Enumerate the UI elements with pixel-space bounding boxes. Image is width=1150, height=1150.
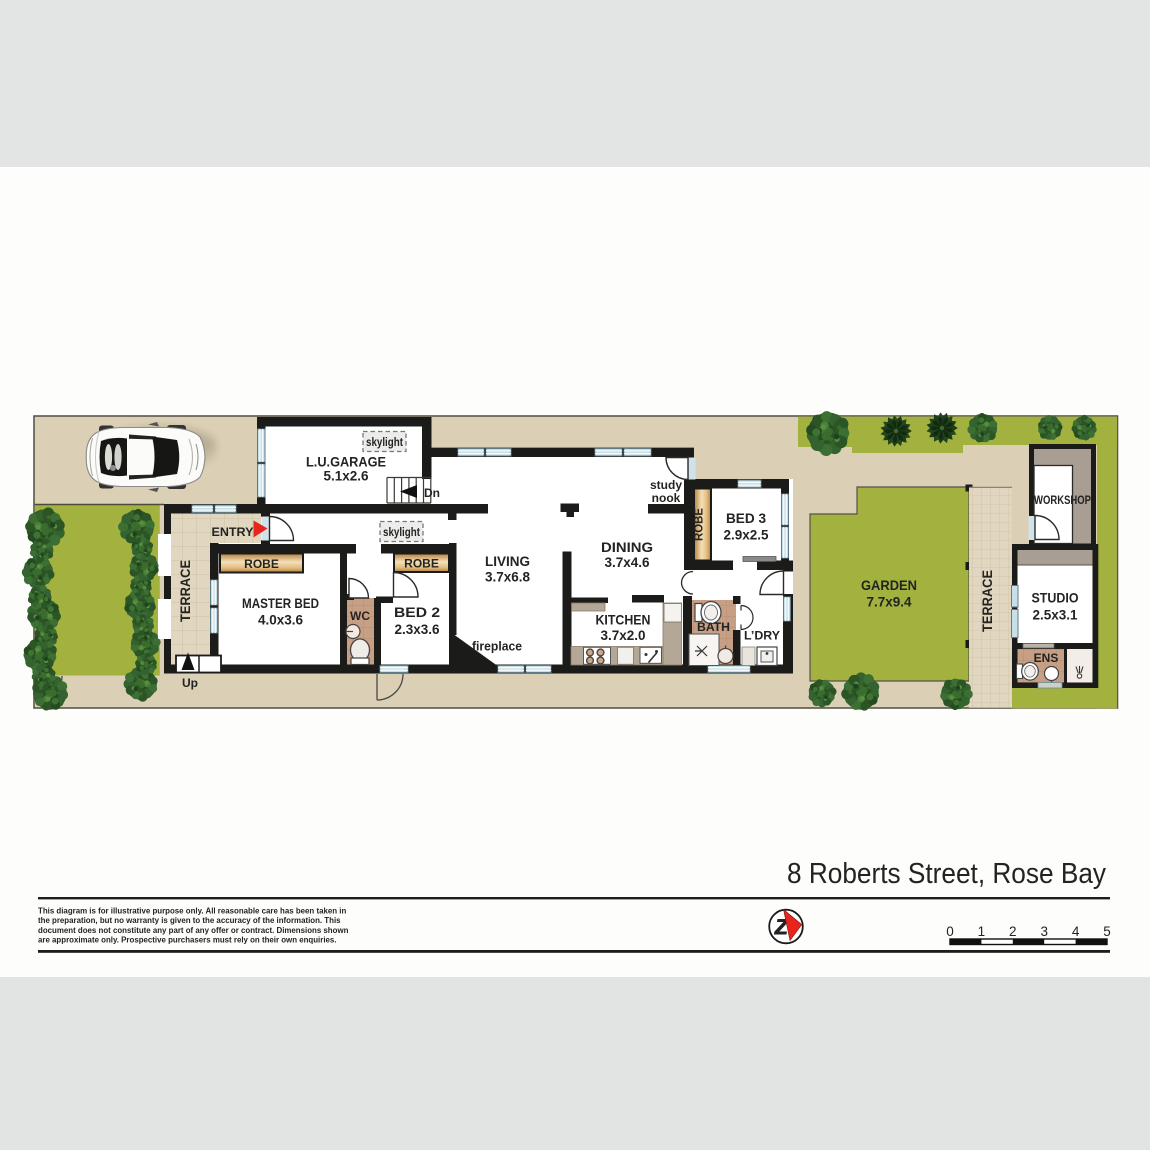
- svg-text:WORKSHOP: WORKSHOP: [1034, 493, 1091, 507]
- svg-text:L’DRY: L’DRY: [744, 629, 780, 643]
- svg-text:document does not constitute a: document does not constitute any part of…: [38, 926, 349, 935]
- svg-text:skylight: skylight: [366, 435, 403, 449]
- svg-text:the preparation, but no warran: the preparation, but no warranty is give…: [38, 916, 341, 925]
- svg-text:2.3x3.6: 2.3x3.6: [394, 622, 440, 637]
- svg-text:DINING: DINING: [601, 539, 653, 555]
- svg-text:4: 4: [1072, 924, 1080, 939]
- svg-text:0: 0: [946, 924, 954, 939]
- svg-text:5: 5: [1103, 924, 1111, 939]
- svg-text:2.5x3.1: 2.5x3.1: [1032, 608, 1078, 623]
- svg-text:MASTER BED: MASTER BED: [242, 595, 319, 611]
- svg-text:4.0x3.6: 4.0x3.6: [258, 613, 304, 628]
- svg-text:Dn: Dn: [424, 486, 440, 500]
- svg-text:ROBE: ROBE: [692, 508, 706, 541]
- svg-text:3.7x6.8: 3.7x6.8: [485, 570, 531, 585]
- svg-text:This diagram is for illustrati: This diagram is for illustrative purpose…: [38, 907, 346, 916]
- svg-text:nook: nook: [652, 491, 681, 505]
- svg-text:1: 1: [978, 924, 986, 939]
- svg-text:ROBE: ROBE: [244, 557, 279, 571]
- svg-text:BED 2: BED 2: [394, 604, 440, 620]
- svg-text:ROBE: ROBE: [404, 557, 439, 571]
- svg-text:5.1x2.6: 5.1x2.6: [323, 469, 369, 484]
- svg-text:3.7x4.6: 3.7x4.6: [604, 555, 650, 570]
- svg-text:8 Roberts Street, Rose Bay: 8 Roberts Street, Rose Bay: [787, 858, 1106, 890]
- svg-text:BATH: BATH: [697, 620, 730, 634]
- svg-text:2: 2: [1009, 924, 1017, 939]
- svg-text:Up: Up: [182, 676, 198, 690]
- svg-text:are approximate only. Prospect: are approximate only. Prospective purcha…: [38, 936, 336, 945]
- svg-text:7.7x9.4: 7.7x9.4: [866, 595, 912, 610]
- svg-text:WC: WC: [350, 609, 370, 623]
- svg-text:STUDIO: STUDIO: [1032, 590, 1079, 606]
- svg-text:2.9x2.5: 2.9x2.5: [723, 528, 769, 543]
- svg-text:ENTRY: ENTRY: [212, 525, 254, 539]
- svg-text:3: 3: [1040, 924, 1048, 939]
- svg-text:fireplace: fireplace: [472, 640, 522, 654]
- svg-text:skylight: skylight: [383, 525, 420, 539]
- svg-text:ENS: ENS: [1034, 651, 1059, 665]
- svg-text:GARDEN: GARDEN: [861, 577, 917, 593]
- svg-text:study: study: [650, 478, 682, 492]
- svg-text:LIVING: LIVING: [485, 553, 530, 569]
- svg-text:TERRACE: TERRACE: [979, 570, 995, 632]
- svg-text:KITCHEN: KITCHEN: [596, 612, 651, 628]
- svg-text:BED 3: BED 3: [726, 510, 766, 526]
- svg-text:L.U.GARAGE: L.U.GARAGE: [306, 454, 386, 470]
- svg-text:TERRACE: TERRACE: [177, 560, 193, 622]
- svg-text:3.7x2.0: 3.7x2.0: [600, 628, 645, 643]
